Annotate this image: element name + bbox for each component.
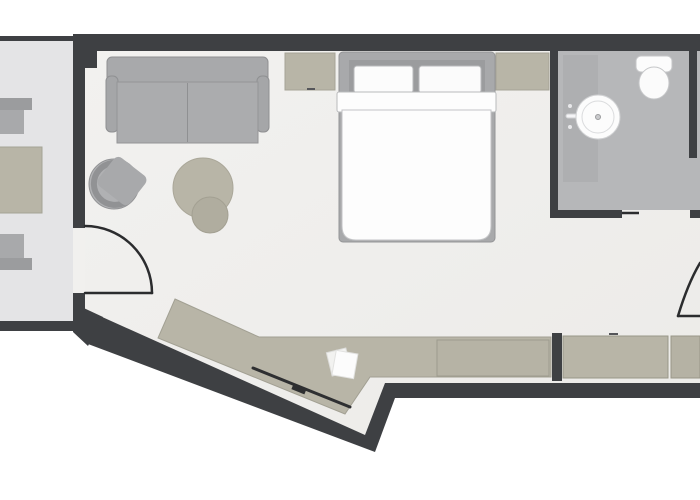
toilet-bowl bbox=[639, 67, 669, 99]
papers-front-sheet bbox=[332, 350, 358, 378]
outdoor-chair-top-back bbox=[0, 98, 32, 110]
desk-drawer-unit bbox=[437, 340, 549, 376]
pillow-left bbox=[354, 66, 413, 93]
outdoor-chair-top-seat bbox=[0, 110, 24, 134]
balcony-top-wall bbox=[0, 36, 73, 41]
bed-sheet-fold bbox=[337, 92, 496, 112]
sink-drain bbox=[596, 115, 601, 120]
pillow-right bbox=[419, 66, 481, 93]
top-wall bbox=[73, 34, 700, 51]
bathroom-bottom-wall-left bbox=[550, 210, 622, 218]
balcony-door-threshold bbox=[73, 228, 85, 293]
floor-plan-svg bbox=[0, 0, 700, 500]
outdoor-chair-bottom-seat bbox=[0, 234, 24, 258]
outdoor-chair-bottom-back bbox=[0, 258, 32, 270]
wardrobe-wall-stub bbox=[552, 333, 562, 381]
sofa-armrest-left bbox=[106, 76, 118, 132]
floor-plan-canvas bbox=[0, 0, 700, 500]
nightstand-right bbox=[496, 53, 549, 90]
sofa-armrest-right bbox=[257, 76, 269, 132]
bathroom-bottom-wall-right bbox=[690, 210, 700, 218]
sink-handle-bottom bbox=[568, 125, 572, 129]
balcony-divider-wall-upper bbox=[73, 40, 85, 228]
bathroom-left-wall bbox=[550, 51, 558, 218]
bed-duvet bbox=[342, 110, 491, 240]
ottoman-small bbox=[192, 197, 228, 233]
wardrobe-group bbox=[563, 334, 700, 378]
sink-handle-top bbox=[568, 104, 572, 108]
balcony-bottom-wall bbox=[0, 321, 75, 331]
wardrobe-right bbox=[671, 336, 700, 378]
nightstand-left bbox=[285, 53, 335, 90]
sofa-backrest bbox=[107, 57, 268, 84]
wardrobe-left bbox=[563, 336, 668, 378]
bathroom-inner-wall bbox=[689, 51, 697, 158]
outdoor-table bbox=[0, 147, 42, 213]
